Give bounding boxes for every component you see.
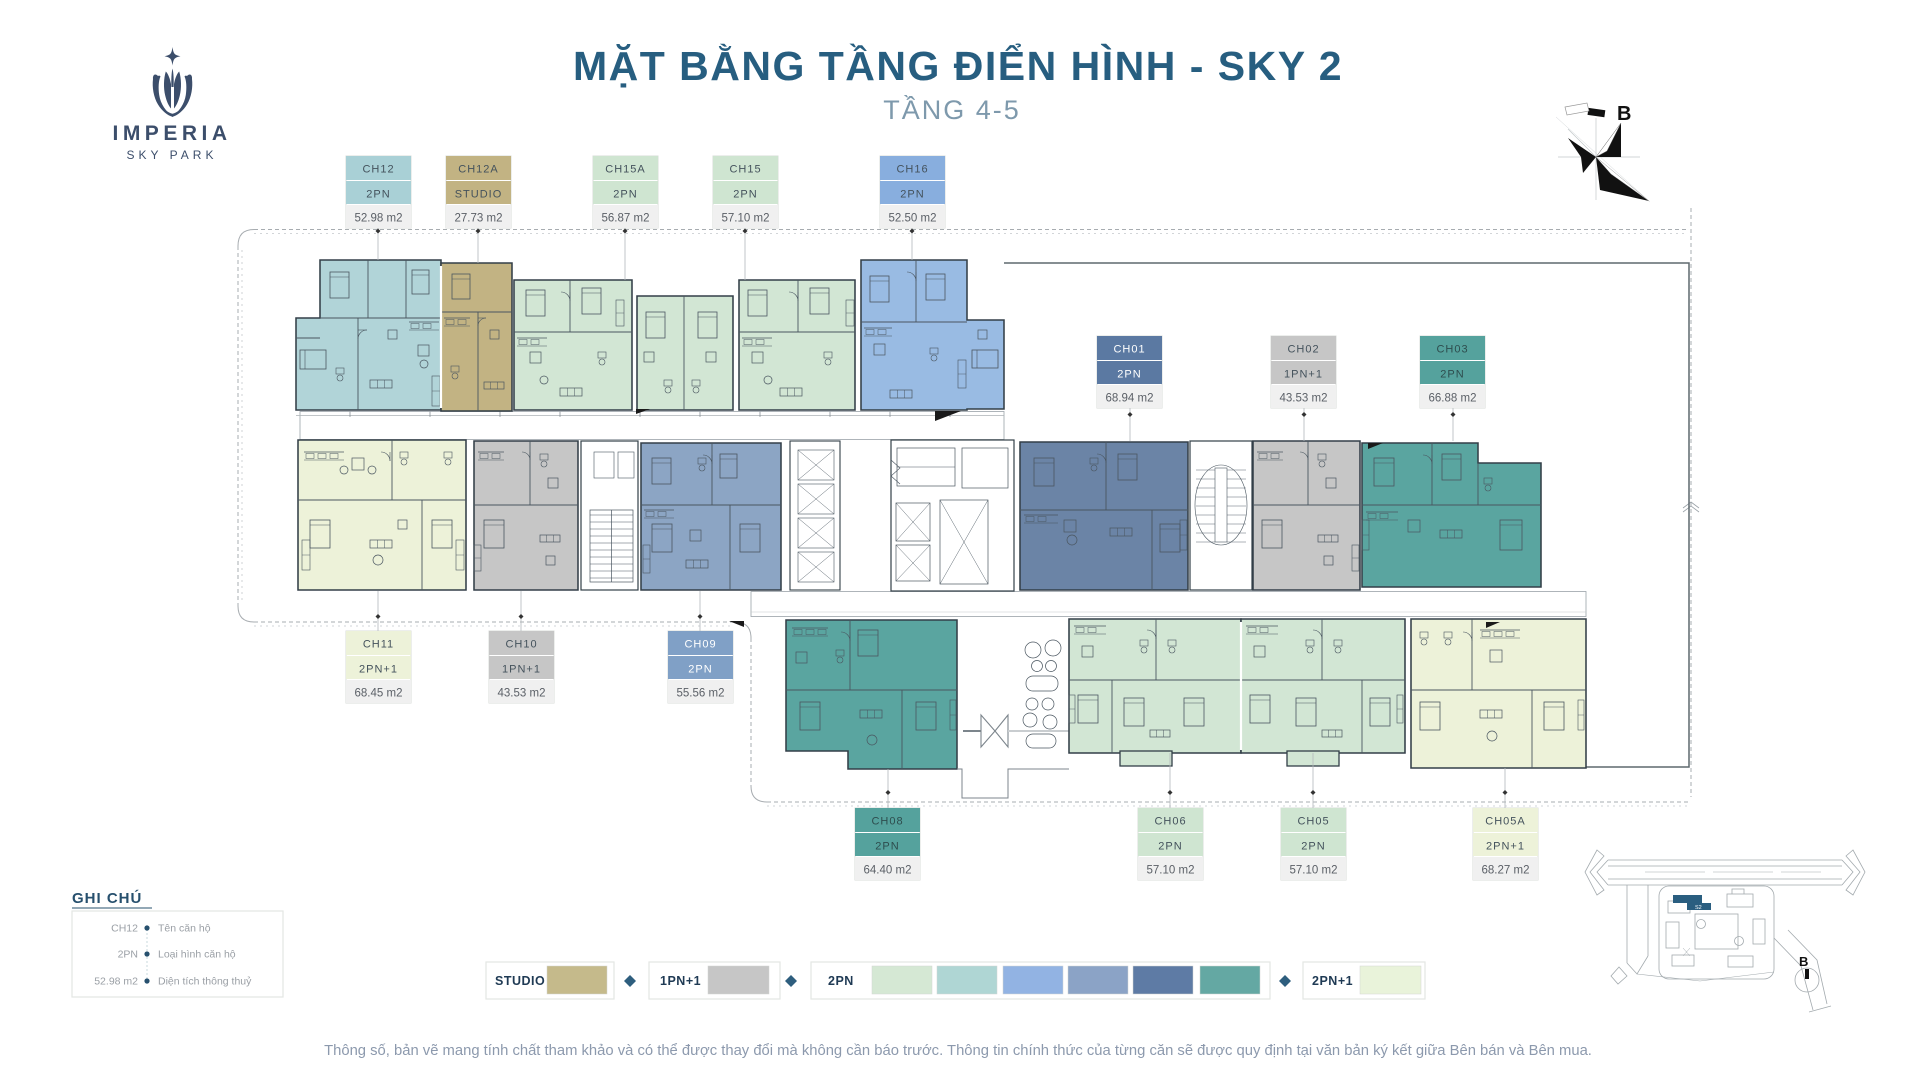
svg-text:52.50 m2: 52.50 m2 <box>889 213 937 225</box>
svg-text:2PN: 2PN <box>828 974 854 988</box>
svg-text:CH12: CH12 <box>362 164 394 176</box>
svg-text:2PN: 2PN <box>1301 841 1325 853</box>
svg-text:1PN+1: 1PN+1 <box>660 974 701 988</box>
svg-text:CH09: CH09 <box>684 639 716 651</box>
svg-text:CH08: CH08 <box>871 816 903 828</box>
svg-text:CH02: CH02 <box>1287 344 1319 356</box>
svg-text:2PN+1: 2PN+1 <box>359 664 398 676</box>
svg-text:56.87 m2: 56.87 m2 <box>602 213 650 225</box>
svg-text:57.10 m2: 57.10 m2 <box>1147 865 1195 877</box>
svg-text:2PN+1: 2PN+1 <box>1486 841 1525 853</box>
svg-text:CH01: CH01 <box>1113 344 1145 356</box>
svg-text:CH10: CH10 <box>505 639 537 651</box>
svg-text:2PN: 2PN <box>366 189 390 201</box>
svg-text:2PN+1: 2PN+1 <box>1312 974 1353 988</box>
svg-text:CH12: CH12 <box>111 923 138 935</box>
svg-text:CH15: CH15 <box>729 164 761 176</box>
svg-text:57.10 m2: 57.10 m2 <box>722 213 770 225</box>
svg-text:CH06: CH06 <box>1154 816 1186 828</box>
svg-text:68.45 m2: 68.45 m2 <box>355 688 403 700</box>
svg-text:55.56 m2: 55.56 m2 <box>677 688 725 700</box>
svg-text:2PN: 2PN <box>900 189 924 201</box>
svg-text:68.94 m2: 68.94 m2 <box>1106 393 1154 405</box>
svg-text:2PN: 2PN <box>875 841 899 853</box>
svg-text:52.98 m2: 52.98 m2 <box>94 976 138 988</box>
svg-text:B: B <box>1617 103 1631 125</box>
svg-text:B: B <box>1799 954 1808 969</box>
svg-text:STUDIO: STUDIO <box>495 974 545 988</box>
svg-text:64.40 m2: 64.40 m2 <box>864 865 912 877</box>
svg-text:MẶT BẰNG TẦNG ĐIỂN HÌNH - SKY: MẶT BẰNG TẦNG ĐIỂN HÌNH - SKY 2 <box>573 42 1343 89</box>
svg-text:CH15A: CH15A <box>605 164 645 176</box>
svg-text:43.53 m2: 43.53 m2 <box>1280 393 1328 405</box>
svg-text:52.98 m2: 52.98 m2 <box>355 213 403 225</box>
svg-text:Loại hình căn hộ: Loại hình căn hộ <box>158 949 236 961</box>
svg-text:CH03: CH03 <box>1436 344 1468 356</box>
svg-text:TẦNG 4-5: TẦNG 4-5 <box>883 94 1021 125</box>
svg-text:S2: S2 <box>1695 905 1702 911</box>
svg-text:57.10 m2: 57.10 m2 <box>1290 865 1338 877</box>
svg-text:Thông số, bản vẽ mang tính chấ: Thông số, bản vẽ mang tính chất tham khả… <box>324 1043 1592 1059</box>
svg-text:2PN: 2PN <box>1117 369 1141 381</box>
svg-text:STUDIO: STUDIO <box>455 189 503 201</box>
svg-text:CH05: CH05 <box>1297 816 1329 828</box>
svg-text:Diện tích thông thuỷ: Diện tích thông thuỷ <box>158 976 252 988</box>
svg-text:CH11: CH11 <box>363 639 394 651</box>
svg-text:GHI CHÚ: GHI CHÚ <box>72 889 142 907</box>
svg-text:2PN: 2PN <box>733 189 757 201</box>
svg-text:CH05A: CH05A <box>1485 816 1525 828</box>
svg-text:IMPERIA: IMPERIA <box>112 122 231 145</box>
svg-text:1PN+1: 1PN+1 <box>1284 369 1323 381</box>
svg-text:2PN: 2PN <box>1440 369 1464 381</box>
svg-text:43.53 m2: 43.53 m2 <box>498 688 546 700</box>
svg-text:2PN: 2PN <box>613 189 637 201</box>
svg-text:27.73 m2: 27.73 m2 <box>455 213 503 225</box>
svg-text:2PN: 2PN <box>688 664 712 676</box>
svg-text:68.27 m2: 68.27 m2 <box>1482 865 1530 877</box>
svg-text:CH12A: CH12A <box>458 164 498 176</box>
svg-text:66.88 m2: 66.88 m2 <box>1429 393 1477 405</box>
svg-text:CH16: CH16 <box>896 164 928 176</box>
svg-text:2PN: 2PN <box>1158 841 1182 853</box>
svg-text:Tên căn hộ: Tên căn hộ <box>158 923 211 935</box>
svg-text:1PN+1: 1PN+1 <box>502 664 541 676</box>
svg-text:SKY PARK: SKY PARK <box>127 148 218 162</box>
svg-text:2PN: 2PN <box>118 949 138 961</box>
